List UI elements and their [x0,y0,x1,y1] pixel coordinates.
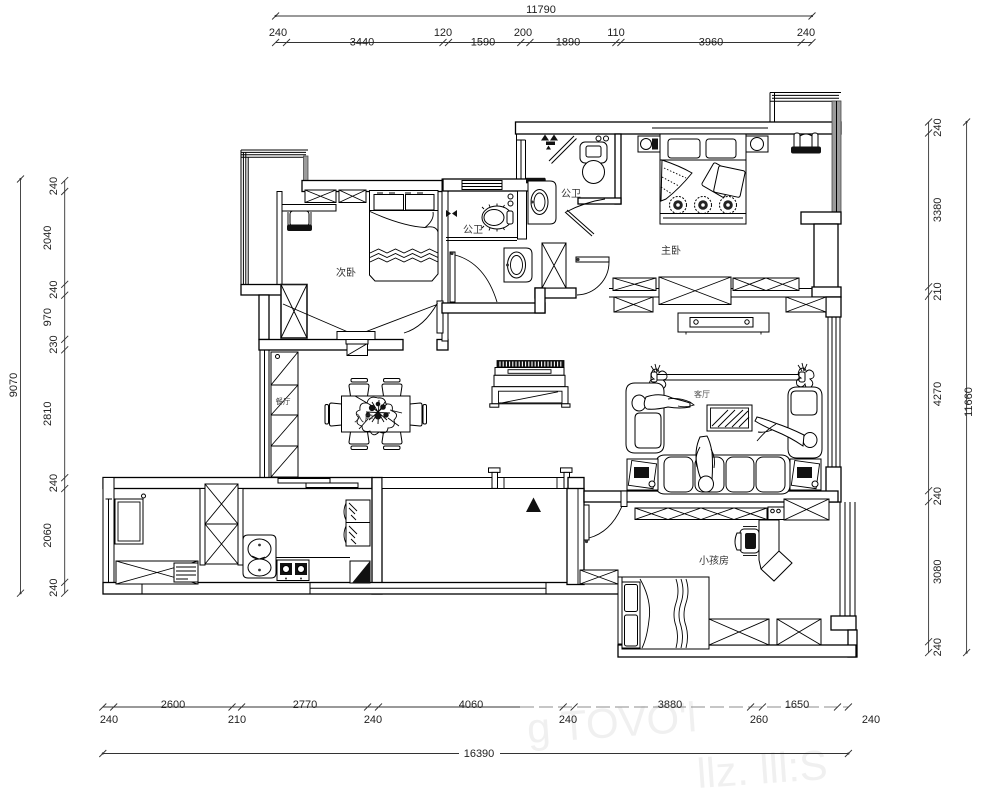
svg-text:2770: 2770 [293,699,317,711]
svg-text:3080: 3080 [932,559,944,583]
svg-text:餐厅: 餐厅 [276,397,291,406]
svg-text:210: 210 [228,714,246,726]
svg-text:240: 240 [48,579,60,597]
svg-text:1890: 1890 [556,37,580,49]
svg-text:2040: 2040 [42,226,54,250]
svg-text:240: 240 [48,474,60,492]
svg-text:小孩房: 小孩房 [699,554,729,567]
svg-text:11660: 11660 [963,387,975,417]
svg-text:240: 240 [100,714,118,726]
svg-text:11790: 11790 [526,4,556,16]
svg-text:240: 240 [932,487,944,505]
svg-text:240: 240 [48,281,60,299]
svg-text:9070: 9070 [8,373,20,397]
svg-text:3440: 3440 [350,37,374,49]
svg-text:1590: 1590 [471,37,495,49]
svg-text:公卫: 公卫 [463,225,483,236]
svg-text:客厅: 客厅 [694,389,710,399]
svg-text:200: 200 [514,27,532,39]
svg-text:970: 970 [42,308,54,326]
svg-text:240: 240 [862,714,880,726]
svg-text:次卧: 次卧 [336,266,356,279]
svg-text:入户: 入户 [354,412,374,425]
svg-text:240: 240 [559,714,577,726]
svg-text:110: 110 [607,27,625,39]
svg-text:2600: 2600 [161,699,185,711]
svg-text:230: 230 [48,335,60,353]
svg-text:3380: 3380 [932,198,944,222]
svg-text:2060: 2060 [42,523,54,547]
svg-text:llz. lll:S: llz. lll:S [695,741,829,793]
svg-text:260: 260 [750,714,768,726]
svg-text:240: 240 [364,714,382,726]
svg-text:210: 210 [932,282,944,300]
svg-text:4060: 4060 [459,699,483,711]
svg-text:120: 120 [434,27,452,39]
svg-text:主卧: 主卧 [661,244,681,257]
svg-text:240: 240 [932,638,944,656]
svg-text:1650: 1650 [785,699,809,711]
svg-text:3960: 3960 [699,37,723,49]
svg-text:240: 240 [269,27,287,39]
svg-text:240: 240 [797,27,815,39]
svg-text:240: 240 [48,177,60,195]
svg-text:4270: 4270 [932,382,944,406]
svg-text:16390: 16390 [464,748,495,760]
svg-text:2810: 2810 [42,401,54,425]
svg-text:240: 240 [932,118,944,136]
svg-text:公卫: 公卫 [561,189,581,200]
svg-text:3880: 3880 [658,699,682,711]
